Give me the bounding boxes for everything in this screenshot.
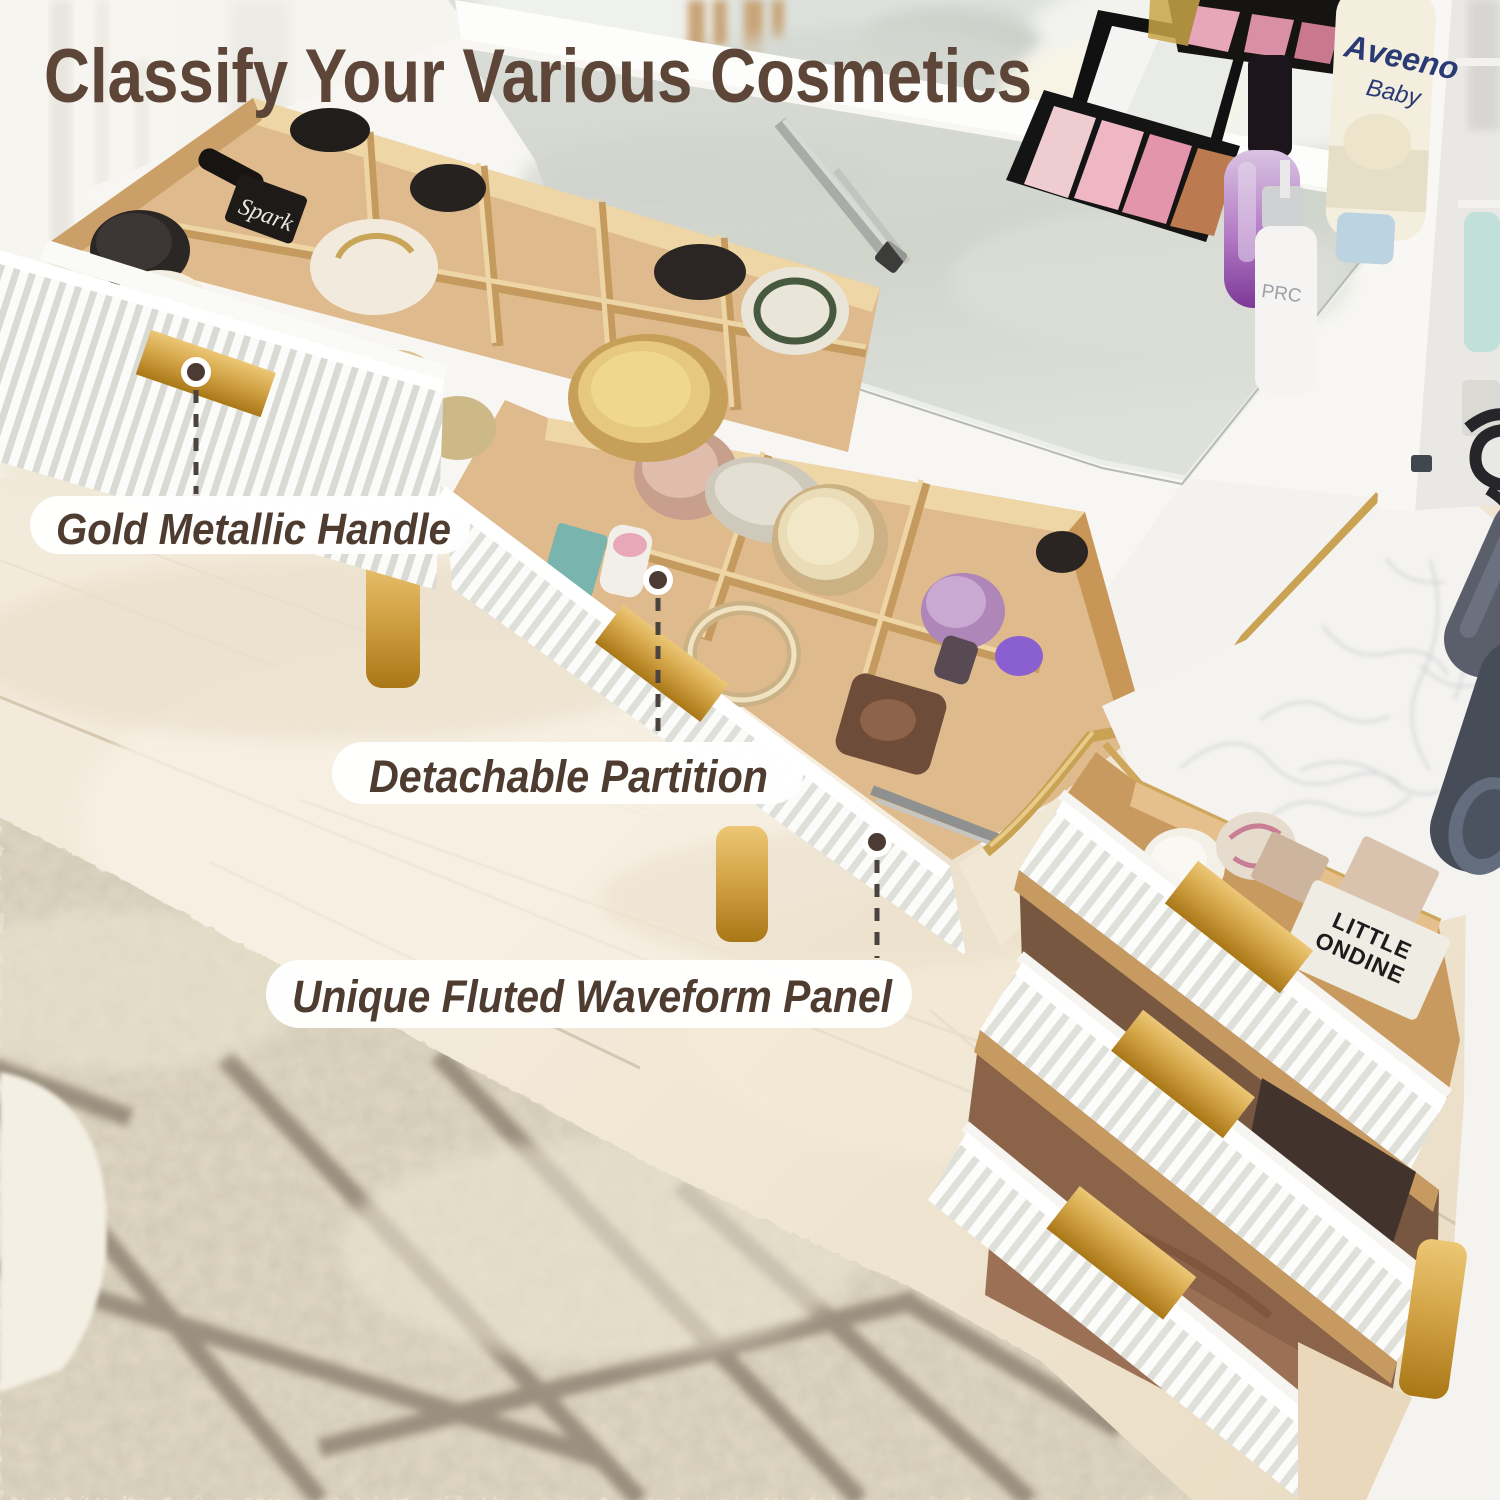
svg-text:Gold Metallic Handle: Gold Metallic Handle (56, 505, 451, 554)
svg-text:Classify Your Various Cosmetic: Classify Your Various Cosmetics (44, 34, 1032, 119)
svg-text:Unique Fluted Waveform Panel: Unique Fluted Waveform Panel (292, 971, 893, 1022)
svg-text:Detachable Partition: Detachable Partition (369, 751, 768, 802)
